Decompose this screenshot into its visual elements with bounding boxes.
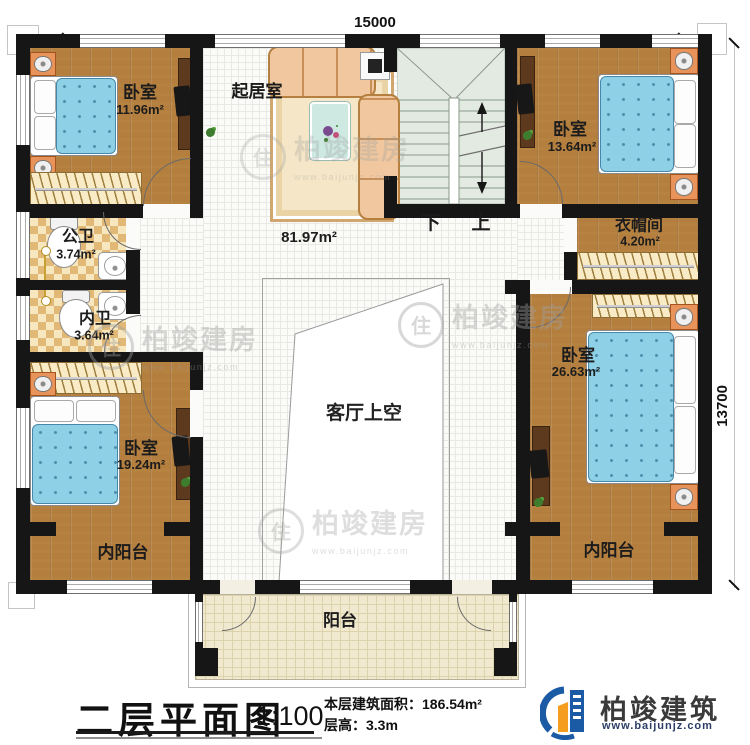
bed-mattress — [32, 424, 118, 504]
wall — [190, 48, 203, 218]
watermark-brand: 柏竣建房 — [452, 303, 568, 333]
wardrobe — [30, 172, 142, 206]
pillow — [34, 80, 56, 114]
balcony-column — [195, 648, 218, 676]
window — [67, 580, 152, 594]
watermark: 住 柏竣建房 www.baijunjz.com — [258, 502, 428, 559]
pillow — [34, 400, 74, 422]
balcony-column — [494, 648, 517, 676]
company-logo-icon — [540, 684, 596, 740]
room-label-inner-balcony-left: 内阳台 — [98, 544, 149, 562]
plan-title: 二层平面图 — [76, 690, 286, 744]
window — [16, 408, 30, 488]
monitor-icon — [515, 83, 534, 115]
stairs-up-label: 上 — [471, 214, 490, 234]
door-opening — [220, 580, 255, 594]
towel-rail-icon — [44, 254, 46, 298]
wall — [164, 522, 203, 536]
door-opening — [190, 390, 203, 437]
dimension-width: 15000 — [354, 14, 396, 31]
window — [16, 296, 30, 340]
watermark: 住 柏竣建房 www.baijunjz.com — [88, 318, 258, 375]
room-area-bedroom-tl: 11.96m² — [116, 103, 164, 117]
floor-height-line: 层高：3.3m — [324, 715, 482, 736]
bed-mattress — [588, 332, 674, 482]
void-label: 客厅上空 — [326, 404, 402, 424]
watermark-url: www.baijunjz.com — [452, 340, 549, 350]
watermark-logo-icon: 住 — [240, 134, 286, 180]
window — [652, 34, 698, 48]
wardrobe — [577, 252, 700, 280]
watermark-url: www.baijunjz.com — [294, 172, 391, 182]
stairs-down-label: 下 — [421, 214, 440, 234]
window — [572, 580, 653, 594]
balcony-label: 阳台 — [323, 612, 357, 630]
wall — [505, 34, 517, 218]
room-area-bedroom-bl: 19.24m² — [117, 458, 165, 472]
nightstand — [670, 48, 698, 74]
bed-mattress — [600, 76, 674, 172]
floor-area-line: 本层建筑面积：186.54m² — [324, 694, 482, 715]
watermark-brand: 柏竣建房 — [312, 509, 428, 539]
right-dimension-line — [734, 44, 735, 588]
floor-plan-canvas: 卧室 11.96m² 起居室 卧室 13.64m² 81.97m² 公卫 3.7… — [0, 0, 750, 745]
watermark-brand: 柏竣建房 — [294, 135, 410, 165]
room-label-living: 起居室 — [232, 83, 283, 101]
hall-floor-right-arm — [517, 218, 564, 280]
title-underline-2 — [76, 737, 322, 739]
door-opening — [143, 204, 190, 218]
room-area-bedroom-tr: 13.64m² — [548, 140, 596, 154]
hall-area-label: 81.97m² — [281, 230, 337, 246]
watermark-logo-icon: 住 — [398, 302, 444, 348]
room-label-bedroom-tl: 卧室 — [123, 84, 157, 102]
room-label-public-bath: 公卫 — [62, 230, 94, 247]
room-area-cloakroom: 4.20m² — [620, 235, 660, 248]
watermark-url: www.baijunjz.com — [142, 362, 239, 372]
window — [300, 580, 410, 594]
staircase — [397, 48, 505, 204]
watermark-logo-icon: 住 — [88, 324, 134, 370]
window — [215, 34, 345, 48]
watermark-logo-icon: 住 — [258, 508, 304, 554]
nightstand — [670, 304, 698, 330]
plan-scale: 1:100 — [256, 701, 324, 732]
door-opening — [564, 218, 577, 252]
wall — [664, 522, 712, 536]
window — [509, 602, 517, 642]
pillow — [674, 80, 696, 124]
door-opening — [452, 580, 492, 594]
watermark: 住 柏竣建房 www.baijunjz.com — [398, 296, 568, 353]
wall — [505, 522, 560, 536]
watermark: 住 柏竣建房 www.baijunjz.com — [240, 128, 410, 185]
pillow — [76, 400, 116, 422]
room-label-cloakroom: 衣帽间 — [615, 219, 663, 236]
window — [420, 34, 500, 48]
window — [545, 34, 600, 48]
watermark-brand: 柏竣建房 — [142, 325, 258, 355]
company-url: www.baijunjz.com — [602, 720, 713, 732]
pillow — [674, 124, 696, 168]
nightstand — [30, 372, 56, 396]
room-label-bedroom-tr: 卧室 — [553, 121, 587, 139]
nightstand — [670, 174, 698, 200]
window — [16, 75, 30, 145]
window — [195, 602, 203, 642]
room-area-public-bath: 3.74m² — [56, 248, 96, 261]
plan-info: 本层建筑面积：186.54m² 层高：3.3m — [324, 694, 482, 736]
monitor-icon — [171, 435, 190, 467]
wall — [384, 48, 397, 72]
door-opening — [520, 204, 562, 218]
watermark-url: www.baijunjz.com — [312, 546, 409, 556]
dimension-height: 13700 — [714, 385, 731, 427]
monitor-icon — [529, 449, 550, 479]
nightstand — [30, 52, 56, 76]
window — [16, 212, 30, 278]
nightstand — [670, 484, 698, 510]
window — [80, 34, 165, 48]
pillow — [34, 116, 56, 150]
room-label-bedroom-bl: 卧室 — [124, 440, 158, 458]
pillow — [674, 336, 696, 404]
wall — [16, 280, 140, 290]
wall — [16, 522, 56, 536]
wall — [698, 34, 712, 594]
room-area-bedroom-br: 26.63m² — [552, 365, 600, 379]
room-label-inner-balcony-right: 内阳台 — [584, 542, 635, 560]
pillow — [674, 406, 696, 474]
bed-mattress — [56, 78, 116, 154]
